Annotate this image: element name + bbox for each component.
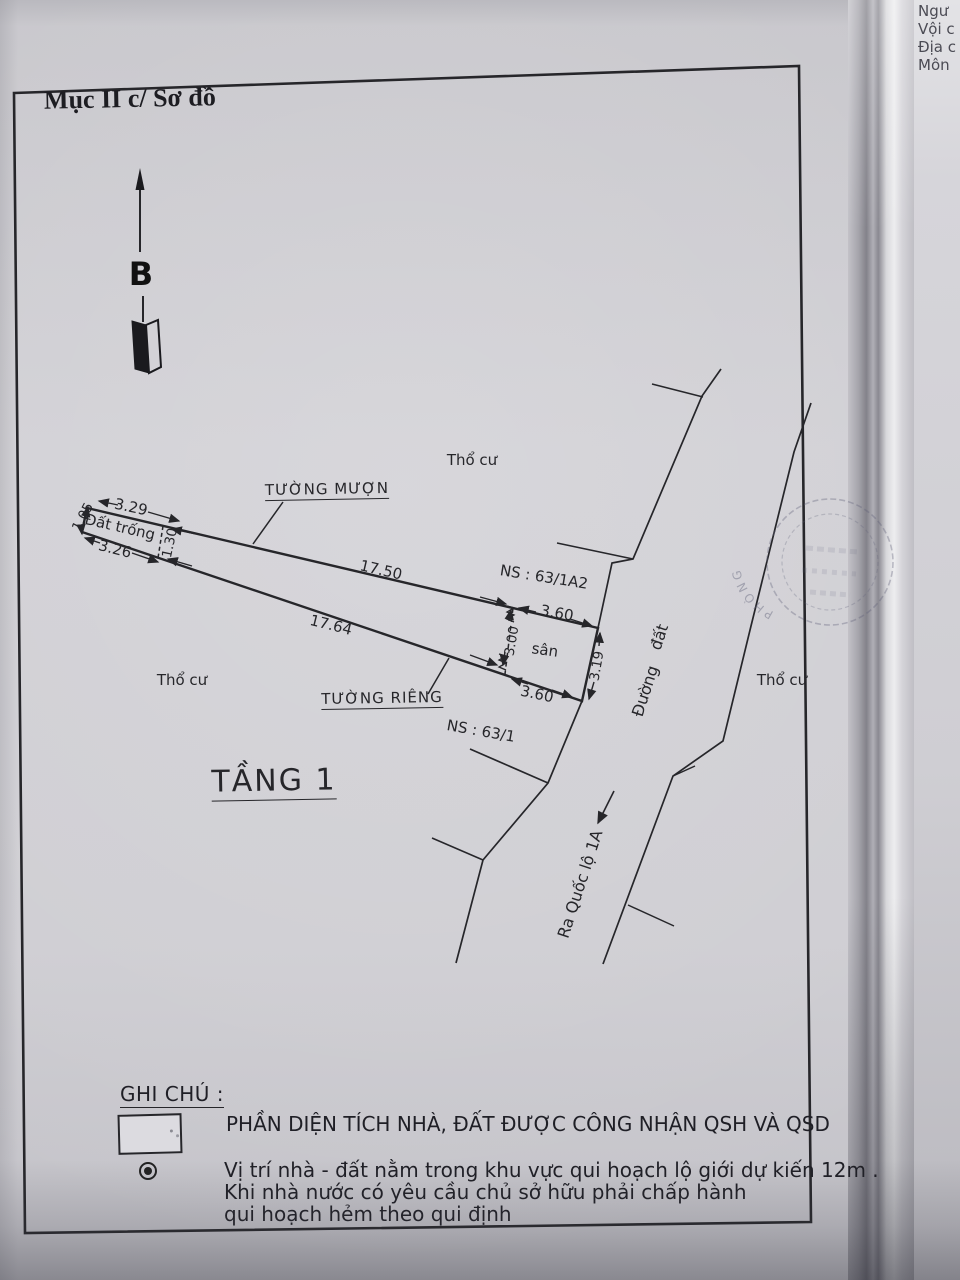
- legend-note-line: qui hoạch hẻm theo qui định: [224, 1202, 512, 1226]
- legend-swatch: [117, 1113, 182, 1155]
- section-header: Mục II c/ Sơ đồ: [44, 82, 216, 116]
- label-tho-cu-top: Thổ cư: [447, 451, 497, 469]
- legend-title: GHI CHÚ :: [120, 1082, 224, 1108]
- label-tang-1: TẦNG 1: [211, 762, 337, 801]
- label-tuong-rieng: TƯỜNG RIÊNG: [321, 688, 443, 710]
- legend-swatch-label: PHẦN DIỆN TÍCH NHÀ, ĐẤT ĐƯỢC CÔNG NHẬN Q…: [226, 1112, 830, 1136]
- legend-note-line: Khi nhà nước có yêu cầu chủ sở hữu phải …: [224, 1180, 747, 1204]
- label-san: sân: [531, 639, 560, 661]
- label-tho-cu-left: Thổ cư: [157, 671, 207, 689]
- official-stamp: PHÒNG: [729, 499, 893, 625]
- leader-tuong-muon: [253, 502, 283, 544]
- label-tuong-muon: TƯỜNG MƯỢN: [265, 479, 389, 501]
- scanned-survey-page: Ngư Vội c Địa c Môn: [0, 0, 960, 1280]
- dimension-arrows: [81, 501, 600, 699]
- label-tho-cu-right: Thổ cư: [757, 671, 807, 689]
- road-boundary: [456, 369, 811, 964]
- road-direction-arrow: [598, 791, 614, 823]
- bullseye-icon: [139, 1162, 157, 1180]
- legend-note-line: Vị trí nhà - đất nằm trong khu vực qui h…: [224, 1158, 879, 1182]
- drawing-border: [14, 66, 811, 1233]
- north-label: B: [129, 255, 153, 293]
